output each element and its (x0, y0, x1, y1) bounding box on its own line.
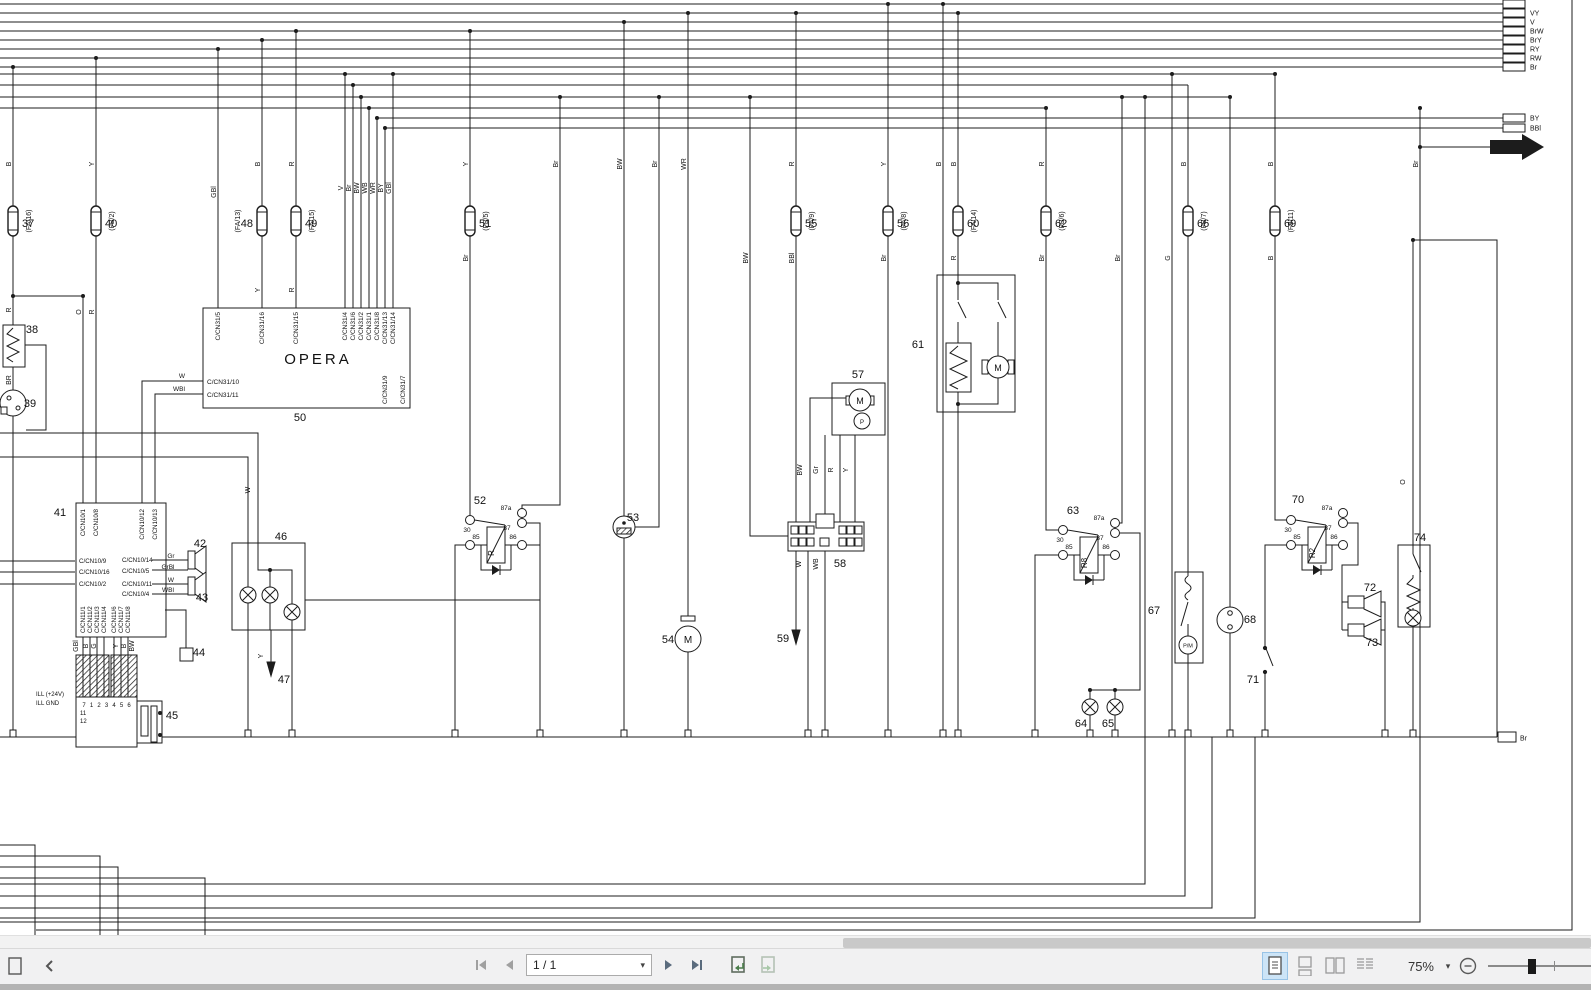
ground-connector (685, 730, 691, 737)
opera-pin-label: C/CN31/2 (358, 312, 365, 341)
lighter-53-dot (623, 522, 626, 525)
junction-dot (794, 11, 798, 15)
speaker-43 (188, 577, 195, 595)
junction-dot (956, 11, 960, 15)
wire (0, 0, 1572, 935)
wire-color-label: R (89, 309, 96, 314)
wire (624, 13, 855, 737)
wire-color-label: Br (553, 160, 560, 168)
motor-letter: M (684, 635, 692, 646)
speaker-42-bell (195, 546, 206, 576)
lamp-symbol (1082, 699, 1098, 715)
junction-dot (1120, 95, 1124, 99)
wire-color-label: GBl (73, 640, 80, 652)
junction-dot (343, 72, 347, 76)
wire-color-label: BY (378, 183, 385, 193)
relay-terminal-label: 87 (1324, 525, 1332, 532)
unit41-pin-label: C/CN10/1 (80, 508, 87, 536)
wire-color-label: R (951, 255, 958, 260)
resistor-61-zigzag (950, 346, 967, 389)
wire-color-label: B (255, 161, 262, 166)
component-number: 58 (834, 558, 846, 570)
junction-dot (216, 47, 220, 51)
page-dropdown-caret[interactable]: ▾ (640, 960, 645, 971)
relay-coil-label: R8 (1080, 557, 1089, 568)
component-number: 38 (26, 324, 38, 336)
wire-color-label: B (1181, 161, 1188, 166)
unit45-pin-label: 12 (80, 719, 87, 725)
zoom-slider-track (1488, 965, 1591, 967)
speaker-42 (188, 551, 195, 569)
component-number: 54 (662, 634, 674, 646)
fuse-symbol (953, 206, 963, 236)
junction-dot (956, 281, 960, 285)
unit41-pin-label: C/CN10/8 (93, 508, 100, 536)
opera-pin-label: C/CN31/14 (390, 312, 397, 345)
switch-58-pin (820, 538, 829, 546)
junction-dot (11, 65, 15, 69)
wire-terminal (1503, 54, 1525, 62)
wire-color-label: Y (258, 653, 265, 658)
pdf-viewer-window: BYGBlBRVBrBWWBWRBYGBlYBrBWBrWRRYBBRBBBrR… (0, 0, 1591, 990)
lamp-symbol (1405, 610, 1421, 626)
component-number: 45 (166, 710, 178, 722)
junction-dot (1170, 72, 1174, 76)
wire (0, 4, 1503, 128)
taskbar-edge (0, 984, 1591, 990)
wire-color-label: R (1039, 161, 1046, 166)
unit41-pin-label: C/CN10/2 (79, 581, 107, 588)
component-number: 43 (196, 592, 208, 604)
junction-dot (941, 2, 945, 6)
component-number: 47 (278, 674, 290, 686)
fuse-symbol (791, 206, 801, 236)
terminal-label: Br (1530, 65, 1538, 72)
ground-connector (955, 730, 961, 737)
wire-terminal (1503, 124, 1525, 132)
component-number: 67 (1148, 605, 1160, 617)
fuse-connector-label: (FB/11) (1288, 210, 1295, 233)
pump-motor-letter: P/M (1183, 644, 1193, 650)
junction-dot (294, 29, 298, 33)
junction-dot (956, 402, 960, 406)
junction-dot (1088, 688, 1092, 692)
zoom-slider[interactable] (1488, 953, 1591, 979)
junction-dot (81, 294, 85, 298)
junction-dot (94, 56, 98, 60)
prev-page-button[interactable] (498, 952, 520, 978)
unit41-pin-label: C/CN10/9 (79, 558, 107, 565)
ground-connector (1382, 730, 1388, 737)
connector-arrow-59-head (792, 630, 800, 644)
scrollbar-thumb[interactable] (843, 938, 1591, 948)
wire-color-label: Y (113, 643, 120, 648)
component-number: 70 (1292, 494, 1304, 506)
wire-color-label: GBl (386, 182, 393, 194)
wire-color-label: R (289, 287, 296, 292)
component-number: 57 (852, 369, 864, 381)
junction-dot (260, 38, 264, 42)
wire-color-label: W (179, 373, 186, 380)
horn-72 (1348, 596, 1364, 608)
wire-color-label: Y (255, 287, 262, 292)
junction-dot (391, 72, 395, 76)
wire-color-label: W (168, 577, 175, 584)
ground-connector (1087, 730, 1093, 737)
wire-color-label: Br (1413, 160, 1420, 168)
last-page-button[interactable] (686, 952, 708, 978)
switch-58-tab (816, 514, 834, 528)
wire-color-label: WR (681, 158, 688, 170)
wire-color-label: GrBl (162, 564, 176, 571)
switch-58-pin (847, 526, 854, 534)
component-number: 42 (194, 538, 206, 550)
single-page-view-button[interactable] (1262, 952, 1288, 980)
switch-58-pin (839, 538, 846, 546)
lamp-symbol (1107, 699, 1123, 715)
fuse-symbol (1041, 206, 1051, 236)
ground-connector (452, 730, 458, 737)
ground-connector (10, 730, 16, 737)
wire-color-label: WB (362, 182, 369, 194)
illumination-label: ILL GND (36, 701, 60, 707)
relay-terminal-label: 87 (1096, 535, 1104, 542)
switch-58-pin (807, 526, 814, 534)
ground-connector (537, 730, 543, 737)
wire-terminal (1503, 45, 1525, 53)
opera-pin-label: C/CN31/1 (366, 312, 373, 341)
component-number: 52 (474, 495, 486, 507)
junction-dot (1228, 95, 1232, 99)
relay-terminal-label: 87a (501, 505, 512, 512)
wire-color-label: BR (6, 375, 13, 385)
switch-58-pin (855, 526, 862, 534)
fuse-connector-label: (FA/9) (809, 211, 816, 230)
relay-terminal-label: 86 (1102, 544, 1110, 551)
previous-view-button[interactable] (728, 952, 750, 978)
zoom-slider-tick (1554, 961, 1555, 971)
component-number: 44 (193, 647, 205, 659)
wire-color-label: BW (354, 182, 361, 194)
junction-dot (558, 95, 562, 99)
component-number: 39 (24, 398, 36, 410)
opera-pin-label: C/CN31/15 (293, 312, 300, 345)
wire-color-label: R (289, 161, 296, 166)
fuse-connector-label: (FA/14) (971, 210, 978, 233)
lighter-53-element (617, 528, 631, 534)
wire-color-label: BW (797, 464, 804, 476)
wire-color-label: G (1165, 255, 1172, 260)
junction-dot (359, 95, 363, 99)
fuse-connector-label: (FA/8) (901, 211, 908, 230)
wire-color-label: WBl (162, 587, 174, 594)
continuous-view-button[interactable] (1292, 952, 1318, 980)
ground-connector (1169, 730, 1175, 737)
unit41-pin-label: C/CN10/13 (152, 508, 159, 539)
fuse-symbol (1183, 206, 1193, 236)
park-switch-letter: P (860, 420, 864, 426)
wire-color-label: Br (1115, 254, 1122, 262)
wire-color-label: O (76, 309, 83, 315)
horn-73 (1348, 624, 1364, 636)
terminal-label: Br (1520, 736, 1528, 743)
ground-connector (1032, 730, 1038, 737)
junction-dot (383, 126, 387, 130)
thumbnail-panel-icon[interactable] (4, 953, 26, 979)
document-page[interactable]: BYGBlBRVBrBWWBWRBYGBlYBrBWBrWRRYBBRBBBrR… (0, 0, 1591, 935)
wire-color-label: Y (843, 467, 850, 472)
opera-pin-label: C/CN31/6 (350, 312, 357, 341)
fuse-connector-label: (FA/16) (26, 210, 33, 233)
component-number: 59 (777, 633, 789, 645)
ground-connector (621, 730, 627, 737)
component-number: 41 (54, 507, 66, 519)
switch-61 (958, 302, 1006, 318)
page-number-input[interactable]: 1 / 1 ▾ (526, 954, 652, 976)
fuse-connector-label: (FB/6) (1059, 211, 1066, 230)
wire-color-label: G (91, 643, 98, 648)
relay-52 (466, 509, 527, 576)
ground-connector (1185, 730, 1191, 737)
unit41-pin-label: C/CN11/1 (80, 606, 87, 633)
component-number: 50 (294, 412, 306, 424)
junction-dot (1273, 72, 1277, 76)
ground-connector (1410, 730, 1416, 737)
wire-color-label: WBl (173, 386, 185, 393)
switch-58-pin (799, 538, 806, 546)
connector-44 (180, 648, 193, 661)
unit41-pin-label: C/CN10/16 (79, 569, 110, 576)
unit41-pin-label: C/CN11/8 (125, 606, 132, 633)
collapse-panel-icon[interactable] (38, 953, 60, 979)
wire-color-label: W (245, 486, 252, 493)
fuse-connector-label: (FA/15) (309, 210, 316, 233)
wire-color-label: Br (1039, 254, 1046, 262)
fuse-symbol (8, 206, 18, 236)
unit45-pin-label: 11 (80, 711, 87, 717)
junction-dot (1418, 106, 1422, 110)
component-number: 65 (1102, 718, 1114, 730)
relay-coil-label: R (487, 550, 496, 556)
component-number: 71 (1247, 674, 1259, 686)
component-number: 74 (1414, 532, 1426, 544)
unit41-pin-label: C/CN10/11 (122, 581, 153, 588)
component-number: 72 (1364, 582, 1376, 594)
wire-color-label: GBl (211, 186, 218, 198)
wire-terminal (1503, 18, 1525, 26)
terminal-label: BrY (1530, 38, 1542, 45)
wire-color-label: Y (881, 161, 888, 166)
switch-58-pin (839, 526, 846, 534)
relay-terminal-label: 85 (1065, 544, 1073, 551)
wire-color-label: W (796, 560, 803, 567)
unit41-pin-label: C/CN10/14 (122, 557, 153, 564)
wire-color-label: R (6, 307, 13, 312)
junction-dot (468, 29, 472, 33)
connector-arrow-47-head (267, 662, 275, 676)
device-39-tab (1, 407, 7, 414)
zoom-percent: 75% (1398, 959, 1434, 974)
terminal-label: V (1530, 20, 1535, 27)
lamp-symbol (240, 587, 256, 603)
zoom-slider-handle[interactable] (1528, 959, 1536, 974)
wire-color-label: BW (743, 252, 750, 264)
component-number: 46 (275, 531, 287, 543)
next-page-button[interactable] (658, 952, 680, 978)
fuse-symbol (465, 206, 475, 236)
fuse-number: 48 (241, 218, 253, 230)
harness-hatch (111, 655, 137, 697)
fuse-symbol (883, 206, 893, 236)
fuse-symbol (91, 206, 101, 236)
opera-pin-label: C/CN31/10 (207, 379, 240, 386)
ground-connector (822, 730, 828, 737)
wire-color-label: Br (463, 254, 470, 262)
component-number: 73 (1366, 637, 1378, 649)
wire (943, 4, 1172, 737)
relay-terminal-label: 86 (509, 534, 517, 541)
switch-58-pin (847, 538, 854, 546)
unit41-pin-label: C/CN11/4 (101, 606, 108, 633)
next-view-button[interactable] (756, 952, 778, 978)
ground-connector (289, 730, 295, 737)
component-number: 53 (627, 512, 639, 524)
opera-pin-label: C/CN31/9 (382, 375, 389, 404)
relay-terminal-label: 30 (463, 527, 471, 534)
opera-pin-label: C/CN31/11 (207, 392, 239, 399)
unit41-pin-label: C/CN11/6 (111, 606, 118, 633)
viewer-toolbar: 1 / 1 ▾ (0, 948, 1591, 984)
wiring-diagram: BYGBlBRVBrBWWBWRBYGBlYBrBWBrWRRYBBRBBBrR… (0, 0, 1591, 935)
wire-color-label: V (338, 185, 345, 190)
wire-color-label: WB (813, 558, 820, 570)
wire-color-label: BW (129, 640, 136, 652)
junction-dot (375, 116, 379, 120)
switch-58-pin (807, 538, 814, 546)
wire-color-label: Br (346, 184, 353, 192)
lamp-symbol (262, 587, 278, 603)
wire-color-label: O (1400, 479, 1407, 485)
terminal-label: VY (1530, 11, 1540, 18)
relay-terminal-label: 87a (1094, 515, 1105, 522)
relay-terminal-label: 85 (1293, 534, 1301, 541)
junction-dot (886, 2, 890, 6)
opera-pin-label: C/CN31/4 (342, 312, 349, 341)
component-number: 64 (1075, 718, 1087, 730)
fuse-connector-label: (FB/5) (483, 211, 490, 230)
first-page-button[interactable] (470, 952, 492, 978)
fuse-symbol (291, 206, 301, 236)
junction-dot (686, 11, 690, 15)
terminal-label: BBl (1530, 126, 1541, 133)
illumination-label: ILL (+24V) (36, 692, 64, 698)
junction-dot (1113, 688, 1117, 692)
wire-color-label: R (828, 467, 835, 472)
unit-45-dot (159, 734, 162, 737)
relay-terminal-label: 30 (1056, 537, 1064, 544)
junction-dot (1044, 106, 1048, 110)
junction-dot (11, 294, 15, 298)
thermal-67 (1185, 576, 1191, 600)
terminal-label: RY (1530, 47, 1540, 54)
two-page-continuous-view-button[interactable] (1352, 952, 1378, 980)
two-page-view-button[interactable] (1322, 952, 1348, 980)
wire-color-label: B (6, 161, 13, 166)
switch-67 (1181, 602, 1188, 626)
junction-dot (1411, 238, 1415, 242)
unit41-pin-label: C/CN10/12 (139, 508, 146, 539)
opera-pin-label: C/CN31/13 (382, 312, 389, 345)
wire-color-label: BBl (789, 252, 796, 263)
wire-color-label: Y (89, 161, 96, 166)
junction-dot (622, 20, 626, 24)
relay-coil-label: R2 (1308, 547, 1317, 558)
wire-color-label: B (1268, 161, 1275, 166)
ground-connector (1262, 730, 1268, 737)
relay-terminal-label: 30 (1284, 527, 1292, 534)
switch-58-pin (799, 526, 806, 534)
resistor-74-zigzag (1407, 578, 1420, 611)
page-number-value: 1 / 1 (533, 958, 556, 972)
switch-58-pin (855, 538, 862, 546)
relay-terminal-label: 87a (1322, 505, 1333, 512)
junction-dot (1418, 145, 1422, 149)
component-number: 68 (1244, 614, 1256, 626)
opera-pin-label: C/CN31/7 (400, 375, 407, 404)
lamp-symbol (284, 604, 300, 620)
wire-terminal (1503, 0, 1525, 8)
harness-hatch (76, 655, 109, 697)
fuse-connector-label: (FB/2) (109, 211, 116, 230)
wire-color-label: B (121, 643, 128, 648)
wire-terminal (1503, 27, 1525, 35)
switch-71-contact (1263, 646, 1266, 649)
junction-dot (1143, 95, 1147, 99)
ground-connector (1112, 730, 1118, 737)
horizontal-scrollbar[interactable] (0, 935, 1591, 948)
motor-letter: M (994, 363, 1002, 373)
relay-terminal-label: 86 (1330, 534, 1338, 541)
unit41-pin-label: C/CN11/2 (87, 606, 94, 633)
unit41-pin-label: C/CN11/3 (94, 606, 101, 633)
wire-color-label: B (83, 643, 90, 648)
wire-terminal (1503, 36, 1525, 44)
fuse-symbol (257, 206, 267, 236)
ground-connector (885, 730, 891, 737)
unit-45-dot (159, 712, 162, 715)
zoom-dropdown-caret[interactable]: ▾ (1442, 953, 1454, 979)
wire-color-label: Y (463, 161, 470, 166)
switch-58-pin (791, 538, 798, 546)
component-number: 61 (912, 339, 924, 351)
ground-terminal (1498, 732, 1516, 742)
wire (455, 97, 560, 737)
switch-71-contact (1263, 670, 1266, 673)
wire-color-label: R (789, 161, 796, 166)
junction-dot (351, 83, 355, 87)
wire-color-label: Br (881, 254, 888, 262)
motor-letter: M (856, 396, 864, 406)
wire-color-label: Gr (167, 553, 175, 560)
horn-72-bell (1364, 591, 1381, 617)
terminal-label: BY (1530, 116, 1540, 123)
zoom-out-button[interactable] (1458, 953, 1478, 979)
opera-title: OPERA (284, 351, 352, 368)
opera-pin-label: C/CN31/5 (215, 312, 222, 341)
wire-color-label: Br (652, 160, 659, 168)
ground-connector (805, 730, 811, 737)
wire-layer (0, 0, 1572, 935)
